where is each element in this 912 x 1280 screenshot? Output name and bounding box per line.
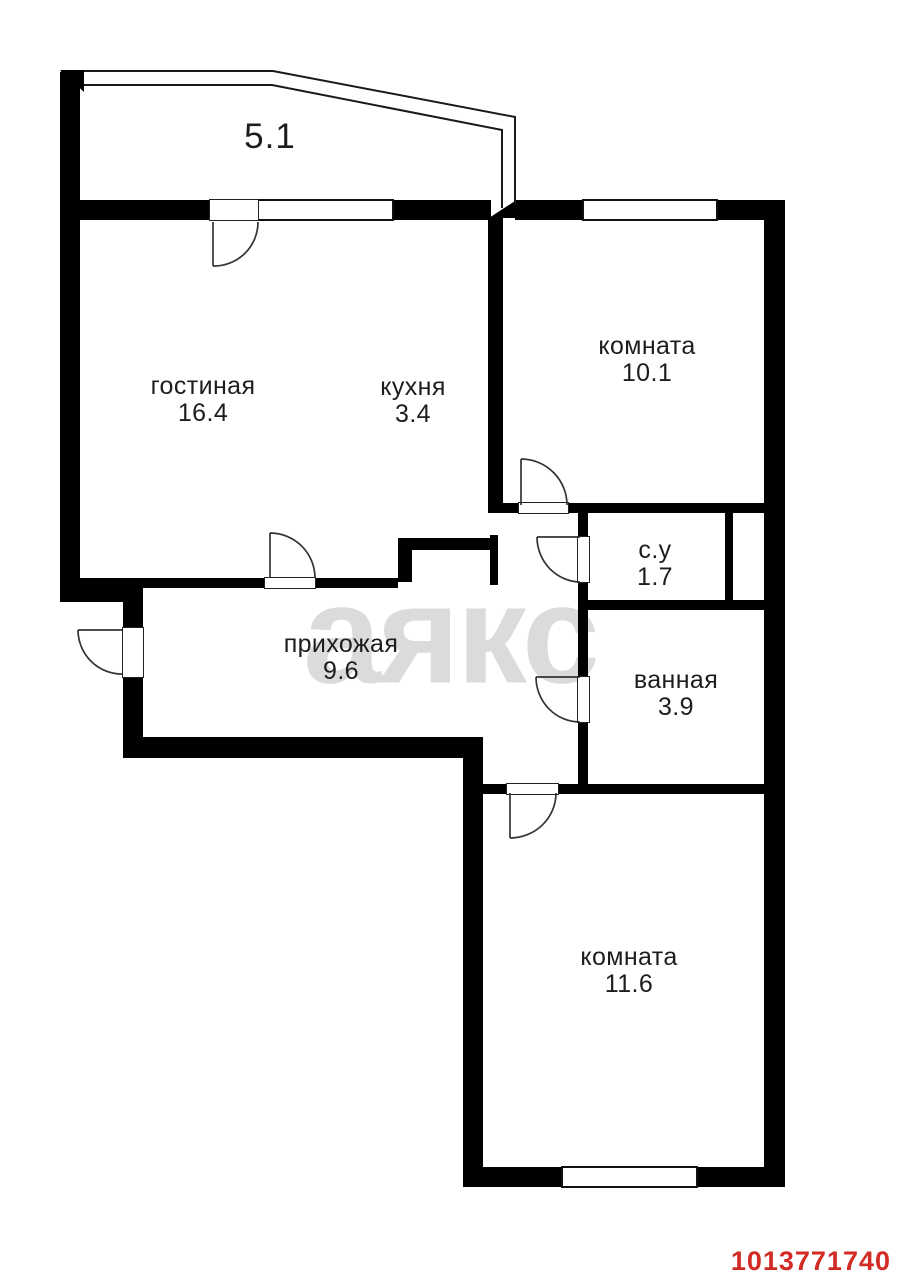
- room-area: 5.1: [244, 117, 296, 156]
- room-area: 3.4: [380, 401, 446, 428]
- room-area: 1.7: [637, 564, 673, 591]
- room-label-kitchen: кухня 3.4: [380, 374, 446, 428]
- door-arc-wc: [537, 537, 580, 582]
- room-name: комната: [580, 943, 677, 971]
- room-label-hallway: прихожая 9.6: [284, 631, 399, 685]
- room-area: 3.9: [634, 694, 718, 721]
- room-label-room-top: комната 10.1: [598, 333, 695, 387]
- room-label-bathroom: ванная 3.9: [634, 667, 718, 721]
- room-name: комната: [598, 332, 695, 360]
- door-arc-balcony: [213, 222, 258, 266]
- room-name: ванная: [634, 666, 718, 694]
- room-area: 11.6: [580, 971, 677, 998]
- door-arc-room-bottom: [510, 793, 556, 838]
- room-label-living-room: гостиная 16.4: [151, 373, 256, 427]
- listing-id: 1013771740: [731, 1246, 891, 1277]
- room-label-balcony: 5.1: [244, 117, 296, 157]
- room-label-wc: с.у 1.7: [637, 537, 673, 591]
- door-arc-bathroom: [536, 677, 580, 722]
- door-arc-entrance: [78, 630, 122, 674]
- plan-linework: [0, 0, 912, 1280]
- wall-corner-top-left: [60, 70, 84, 92]
- floor-plan: аякс: [0, 0, 912, 1280]
- room-area: 16.4: [151, 400, 256, 427]
- room-name: с.у: [638, 536, 671, 564]
- door-arc-living-room: [270, 533, 315, 578]
- room-name: прихожая: [284, 630, 399, 658]
- room-name: кухня: [380, 373, 446, 401]
- door-arc-room-top: [521, 459, 567, 505]
- room-name: гостиная: [151, 372, 256, 400]
- room-label-room-bottom: комната 11.6: [580, 944, 677, 998]
- room-area: 9.6: [284, 658, 399, 685]
- room-area: 10.1: [598, 360, 695, 387]
